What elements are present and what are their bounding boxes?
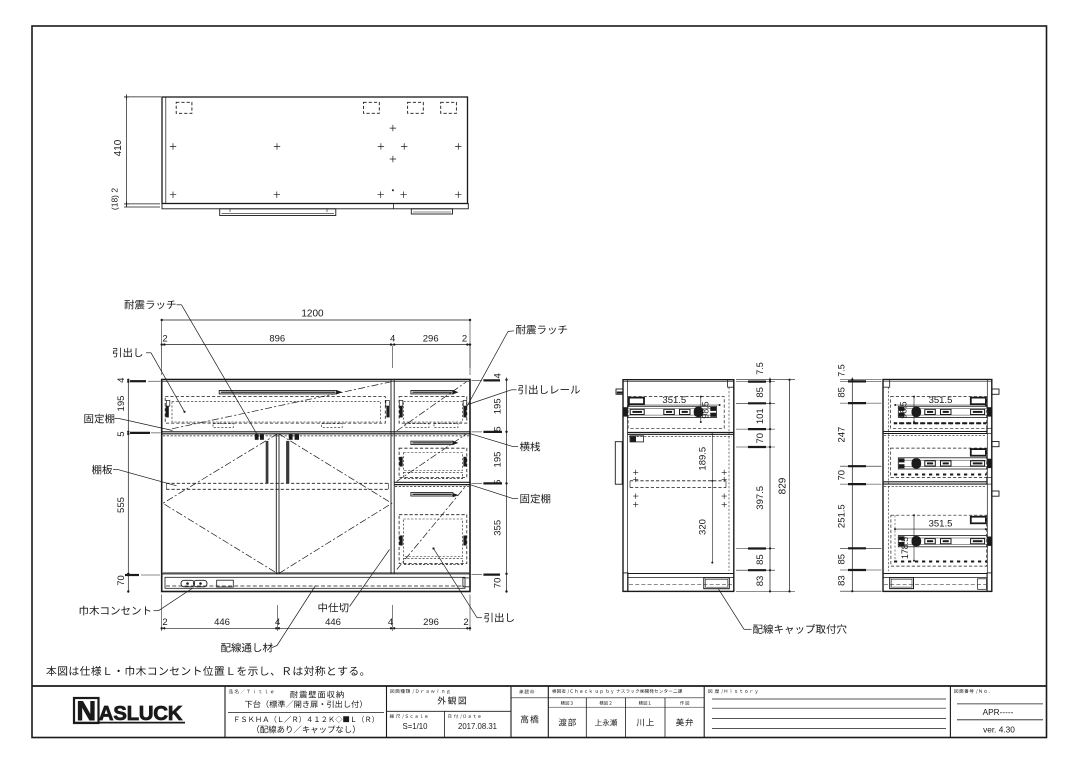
svg-text:247: 247 bbox=[837, 427, 848, 443]
svg-text:4: 4 bbox=[116, 378, 127, 383]
svg-text:ASLUCK: ASLUCK bbox=[99, 702, 183, 725]
svg-text:4: 4 bbox=[388, 617, 393, 628]
svg-text:APR-----: APR----- bbox=[983, 707, 1014, 717]
svg-text:70: 70 bbox=[116, 575, 127, 586]
svg-text:ver. 4.30: ver. 4.30 bbox=[983, 725, 1015, 735]
svg-text:2017.08.31: 2017.08.31 bbox=[458, 722, 497, 731]
svg-text:178.5: 178.5 bbox=[900, 537, 910, 559]
svg-text:189.5: 189.5 bbox=[698, 447, 709, 471]
svg-text:1200: 1200 bbox=[301, 309, 324, 320]
svg-text:5: 5 bbox=[492, 426, 503, 431]
svg-text:83: 83 bbox=[755, 576, 766, 587]
svg-text:195: 195 bbox=[492, 398, 503, 414]
svg-text:(18) 2: (18) 2 bbox=[110, 188, 120, 210]
svg-text:4: 4 bbox=[390, 333, 395, 344]
svg-text:98.5: 98.5 bbox=[898, 401, 908, 418]
svg-text:351.5: 351.5 bbox=[662, 395, 686, 406]
svg-text:296: 296 bbox=[423, 333, 439, 344]
svg-text:85: 85 bbox=[837, 387, 848, 398]
svg-text:320: 320 bbox=[698, 519, 709, 535]
svg-text:351.5: 351.5 bbox=[929, 518, 953, 529]
svg-text:70: 70 bbox=[492, 578, 503, 589]
svg-text:829: 829 bbox=[778, 477, 789, 494]
svg-text:5: 5 bbox=[492, 480, 503, 485]
svg-text:4: 4 bbox=[492, 373, 503, 378]
svg-text:98.5: 98.5 bbox=[700, 401, 710, 418]
svg-text:355: 355 bbox=[492, 520, 503, 536]
svg-text:2: 2 bbox=[462, 333, 467, 344]
svg-text:85: 85 bbox=[837, 554, 848, 565]
svg-text:446: 446 bbox=[325, 617, 341, 628]
svg-text:446: 446 bbox=[214, 617, 230, 628]
svg-text:195: 195 bbox=[116, 396, 127, 412]
svg-text:70: 70 bbox=[755, 433, 766, 444]
svg-text:2: 2 bbox=[162, 333, 167, 344]
svg-text:195: 195 bbox=[492, 452, 503, 468]
svg-text:555: 555 bbox=[116, 497, 127, 513]
svg-text:351.5: 351.5 bbox=[929, 395, 953, 406]
svg-text:85: 85 bbox=[755, 554, 766, 565]
svg-text:4: 4 bbox=[275, 617, 280, 628]
svg-text:296: 296 bbox=[423, 617, 439, 628]
svg-text:5: 5 bbox=[116, 431, 127, 436]
svg-text:85: 85 bbox=[755, 387, 766, 398]
svg-text:83: 83 bbox=[837, 575, 848, 586]
svg-text:N: N bbox=[77, 696, 97, 726]
svg-text:410: 410 bbox=[113, 139, 124, 156]
svg-text:7.5: 7.5 bbox=[755, 362, 765, 375]
svg-text:7.5: 7.5 bbox=[837, 364, 847, 377]
svg-text:S=1/10: S=1/10 bbox=[403, 722, 429, 731]
svg-text:397.5: 397.5 bbox=[755, 486, 766, 510]
svg-text:70: 70 bbox=[837, 470, 848, 481]
svg-text:2: 2 bbox=[162, 617, 167, 628]
svg-text:251.5: 251.5 bbox=[837, 504, 848, 528]
svg-text:896: 896 bbox=[269, 333, 285, 344]
svg-text:2: 2 bbox=[463, 617, 468, 628]
svg-text:101: 101 bbox=[755, 408, 766, 424]
